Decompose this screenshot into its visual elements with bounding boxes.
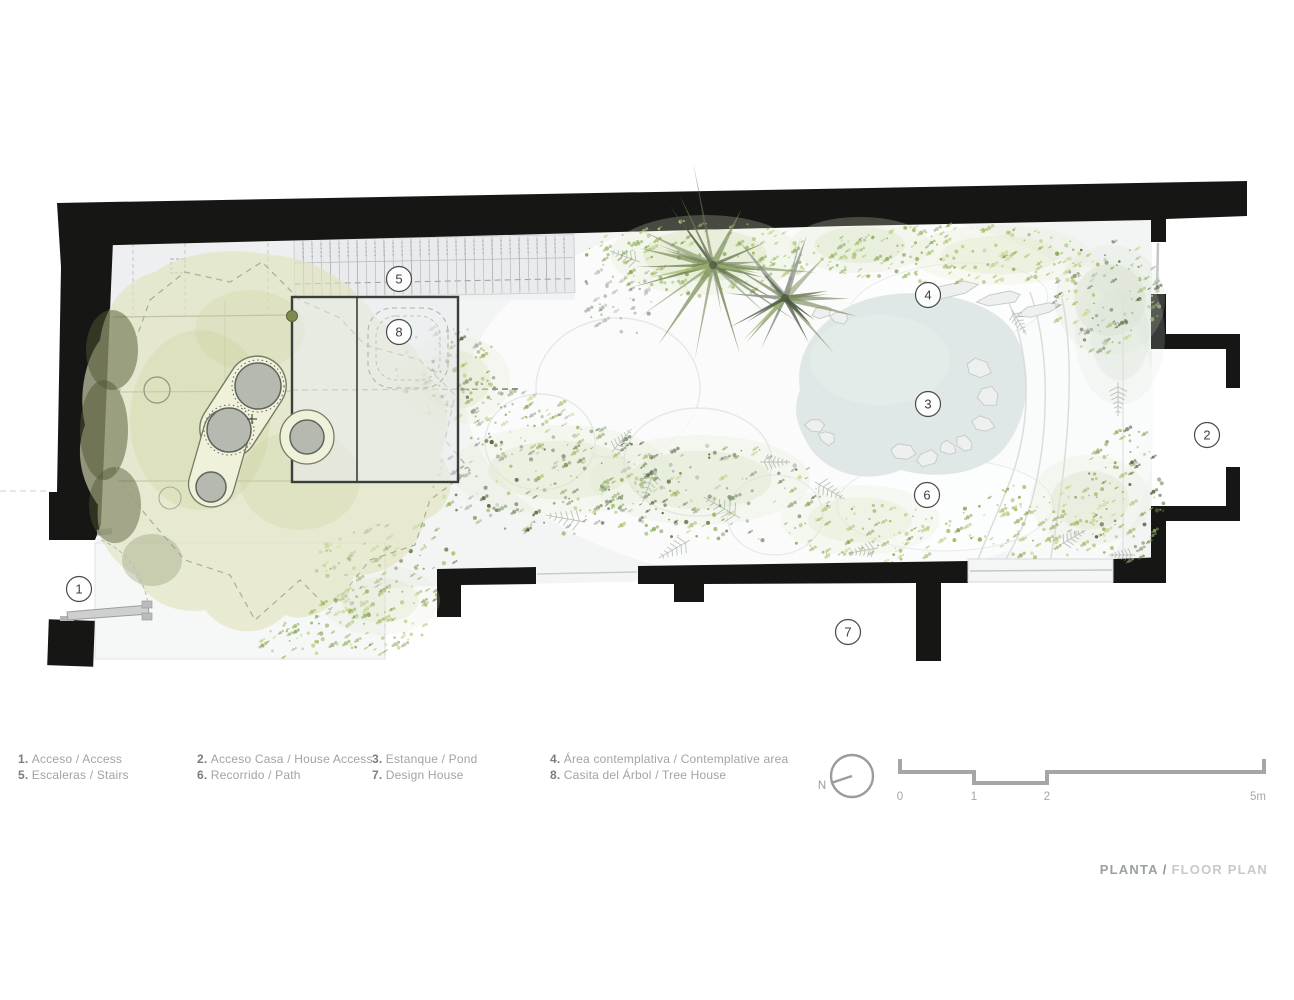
legend-item-access: 1. Acceso / Access <box>18 752 122 767</box>
svg-text:3: 3 <box>924 397 931 412</box>
svg-text:8: 8 <box>395 325 402 340</box>
marker-design-house: 7 <box>836 620 861 645</box>
marker-access: 1 <box>67 577 92 602</box>
north-indicator: N <box>818 755 873 797</box>
drawing-caption: PLANTA/FLOOR PLAN <box>1100 862 1268 877</box>
north-needle <box>831 776 852 783</box>
svg-text:1: 1 <box>75 582 82 597</box>
marker-house-access: 2 <box>1195 423 1220 448</box>
legend-item-pond: 3. Estanque / Pond <box>372 752 478 767</box>
scale-bar-line <box>900 759 1264 783</box>
marker-contemplative-area: 4 <box>916 283 941 308</box>
svg-text:6: 6 <box>923 488 930 503</box>
svg-text:4: 4 <box>924 288 931 303</box>
svg-text:2: 2 <box>1203 428 1210 443</box>
legend-item-contemplative: 4. Área contemplativa / Contemplative ar… <box>550 752 788 767</box>
caption-separator: / <box>1159 862 1172 877</box>
svg-text:5: 5 <box>395 272 402 287</box>
scale-tick-0: 0 <box>897 791 903 803</box>
marker-path: 6 <box>915 483 940 508</box>
legend-item-design-house: 7. Design House <box>372 768 464 783</box>
scale-tick-5m: 5m <box>1250 791 1266 803</box>
scale-tick-1: 1 <box>971 791 977 803</box>
legend-item-stairs: 5. Escaleras / Stairs <box>18 768 129 783</box>
legend-item-path: 6. Recorrido / Path <box>197 768 301 783</box>
legend-item-house-access: 2. Acceso Casa / House Access <box>197 752 373 767</box>
caption-planta: PLANTA <box>1100 862 1159 877</box>
marker-pond: 3 <box>916 392 941 417</box>
floor-plan-drawing: 1 2 3 4 5 6 7 8 N 0 <box>0 0 1294 1000</box>
scale-bar: 0 1 2 5m <box>897 759 1266 803</box>
marker-stairs: 5 <box>387 267 412 292</box>
marker-tree-house: 8 <box>387 320 412 345</box>
svg-text:7: 7 <box>844 625 851 640</box>
scale-tick-2: 2 <box>1044 791 1050 803</box>
caption-floor-plan: FLOOR PLAN <box>1172 862 1269 877</box>
north-label: N <box>818 780 826 792</box>
legend-item-tree-house: 8. Casita del Árbol / Tree House <box>550 768 726 783</box>
